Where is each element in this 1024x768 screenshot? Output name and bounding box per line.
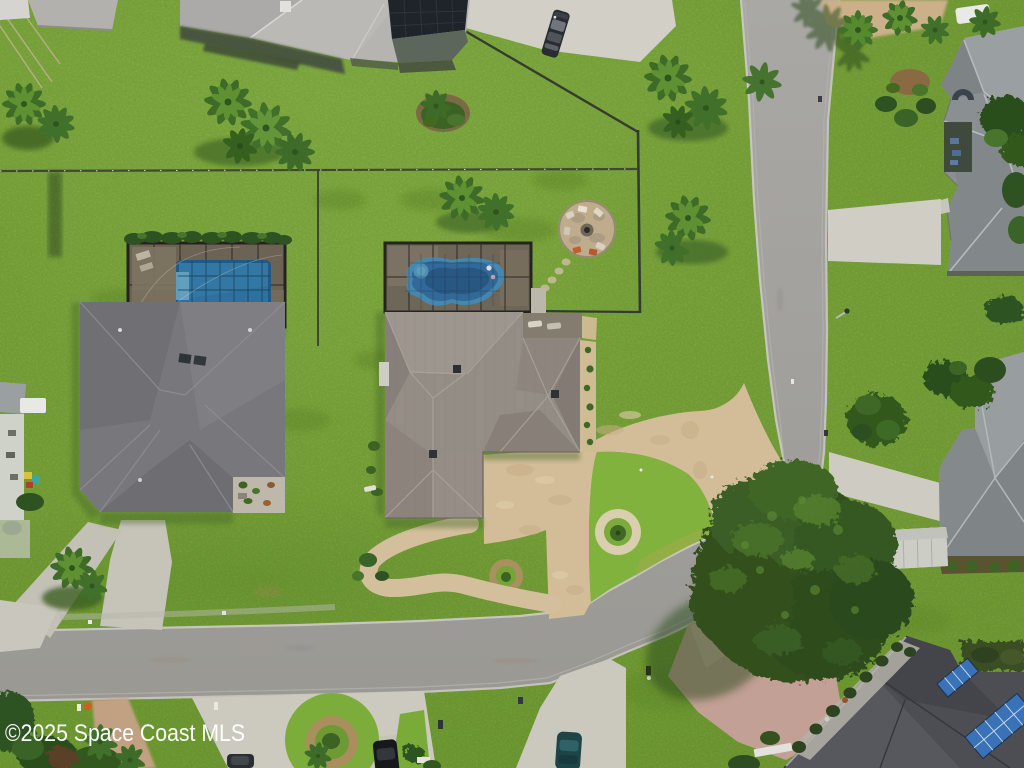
svg-text:©2025 Space Coast MLS: ©2025 Space Coast MLS bbox=[5, 720, 245, 747]
